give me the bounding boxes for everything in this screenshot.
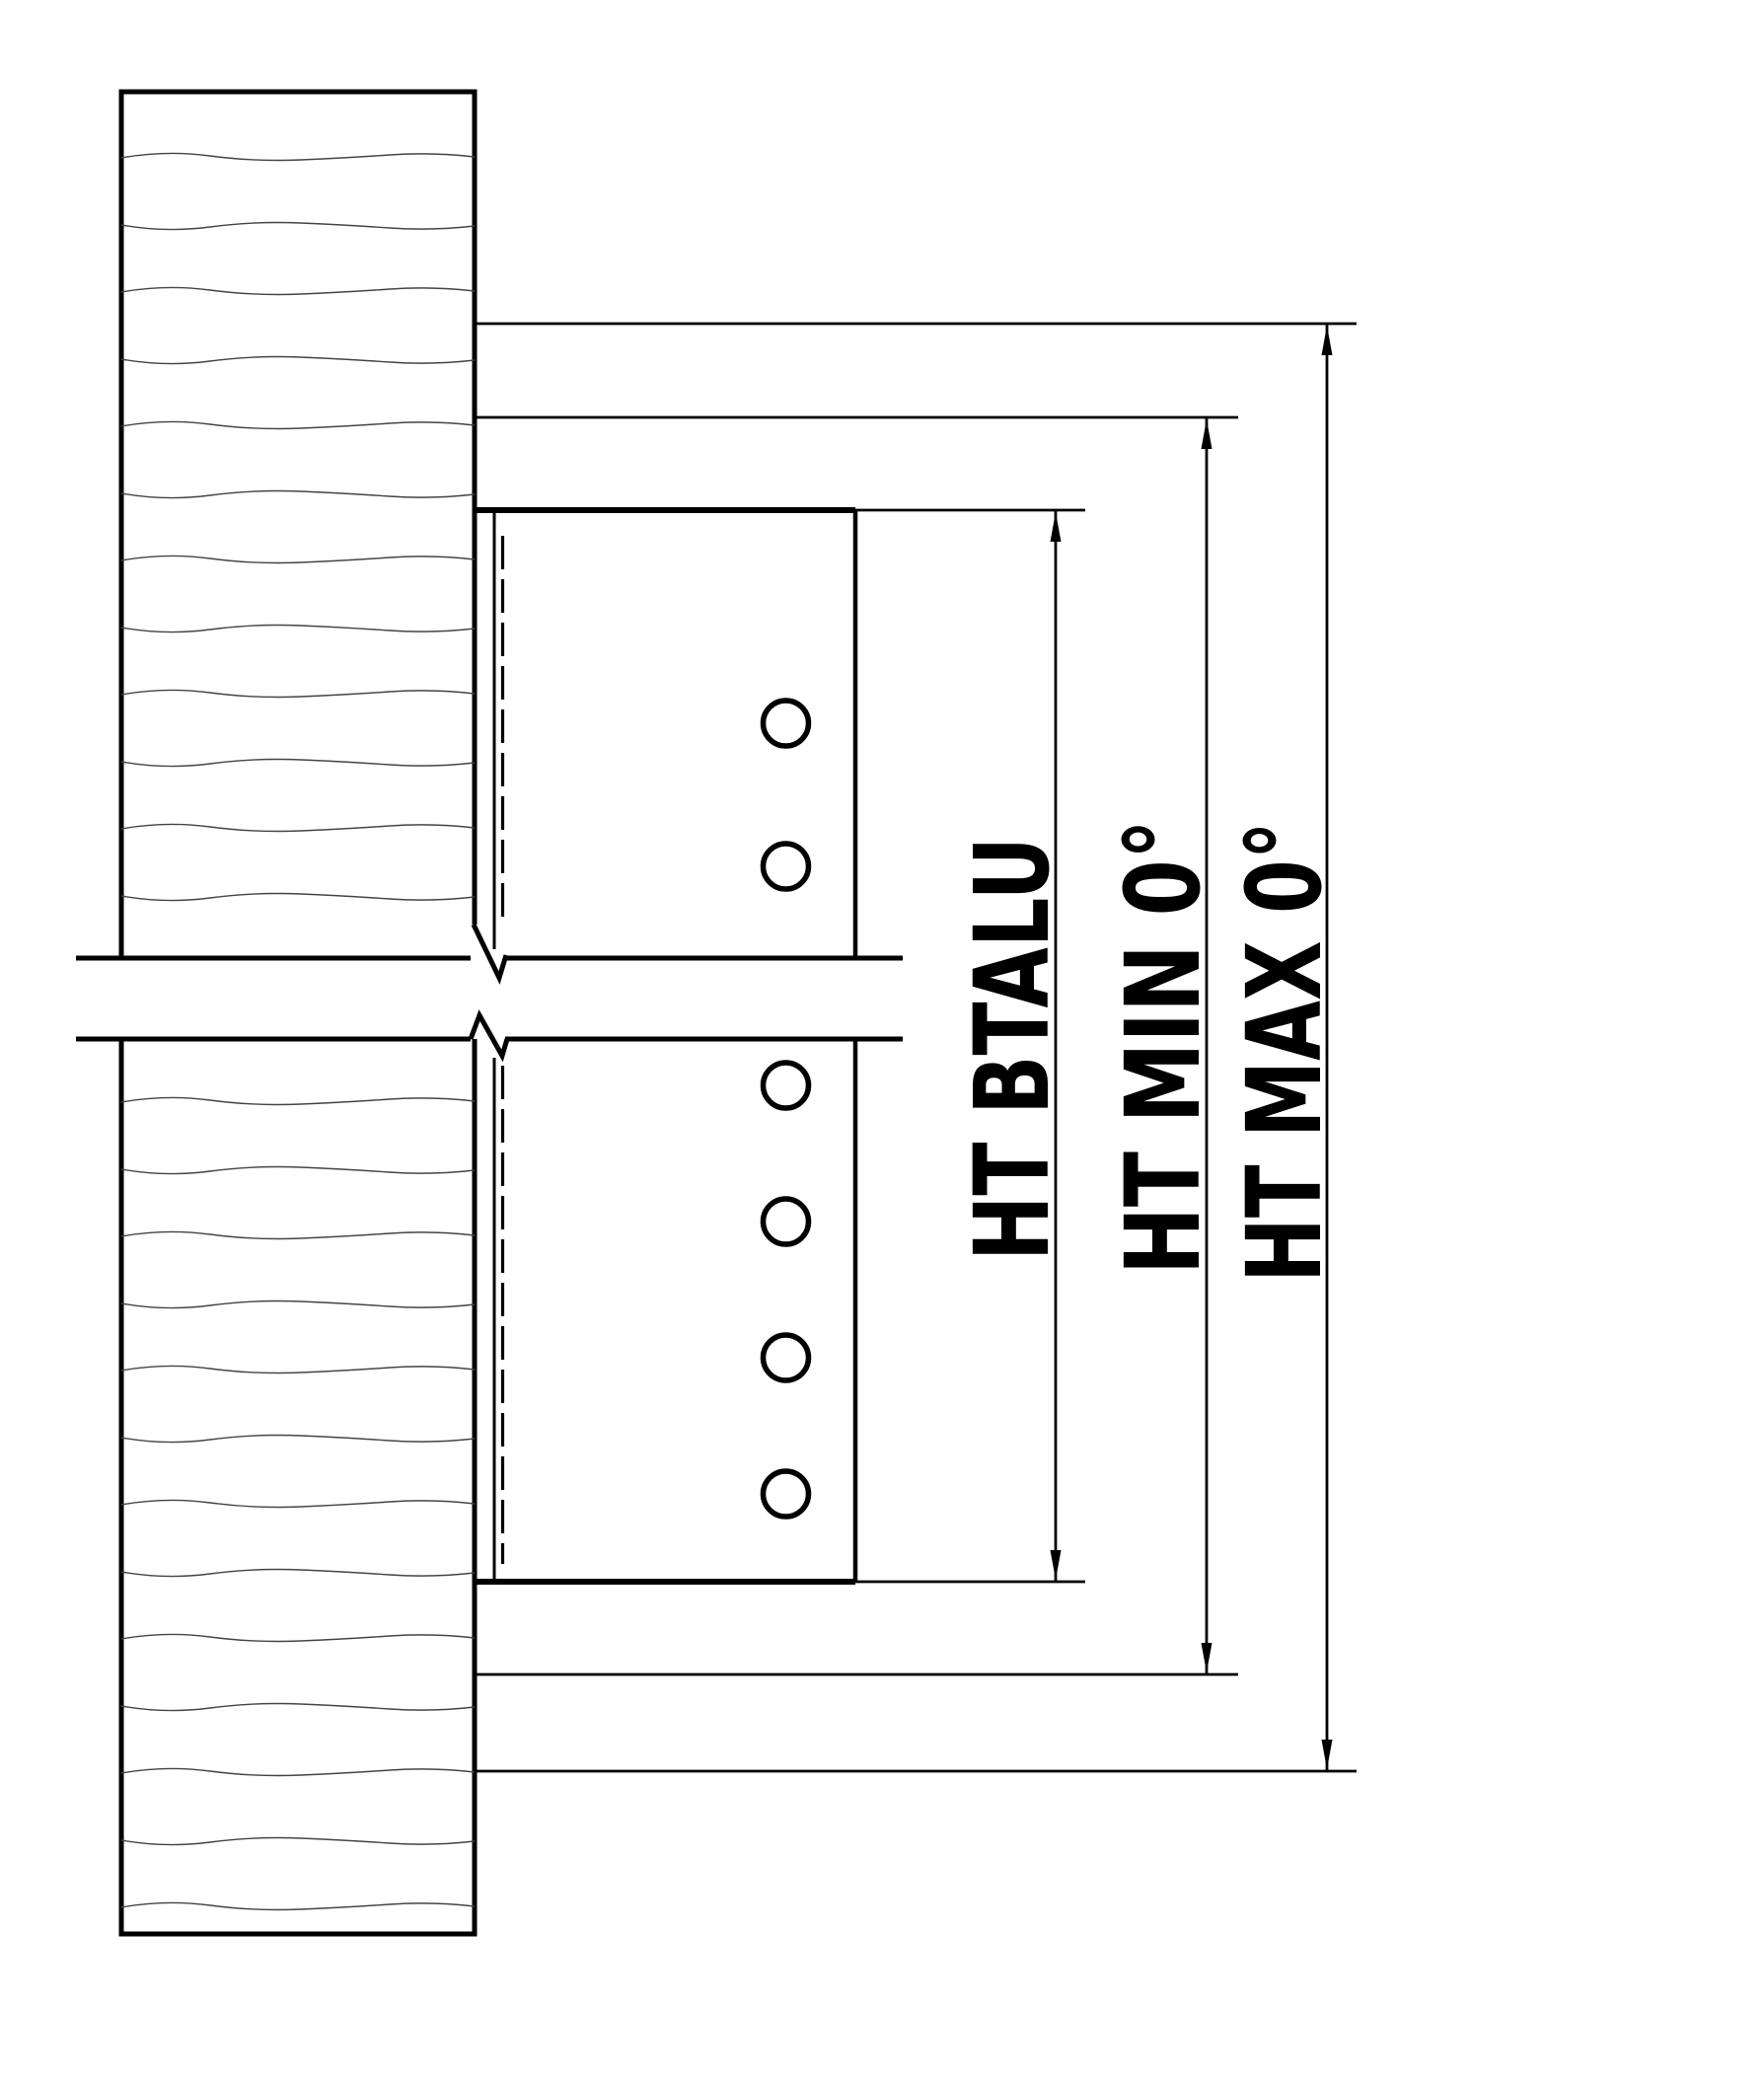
wood-grain-line bbox=[121, 1231, 475, 1238]
screw-hole bbox=[764, 1471, 809, 1517]
wood-grain-line bbox=[121, 1366, 475, 1373]
dimension-label-btalu: HT BTALU bbox=[952, 837, 1072, 1261]
wood-grain-line bbox=[121, 1500, 475, 1507]
wood-grain-line bbox=[121, 491, 475, 498]
arrow-up-icon bbox=[1202, 419, 1213, 449]
break-line-bottom bbox=[76, 1015, 903, 1056]
wood-grain-line bbox=[121, 1570, 475, 1577]
dimension-labels: HT BTALU HT MIN 0° HT MAX 0° bbox=[952, 819, 1345, 1283]
arrow-down-icon bbox=[1202, 1643, 1213, 1672]
arrow-down-icon bbox=[1322, 1740, 1333, 1769]
screw-hole bbox=[764, 701, 809, 746]
wood-jamb-top-outline bbox=[121, 92, 475, 958]
wood-grain-line bbox=[121, 760, 475, 767]
wood-grain-line bbox=[121, 894, 475, 901]
wood-jamb bbox=[121, 92, 475, 1934]
wood-grain-line bbox=[121, 153, 475, 160]
wood-grain-line bbox=[121, 1167, 475, 1174]
technical-section-drawing: HT BTALU HT MIN 0° HT MAX 0° bbox=[0, 0, 1764, 2079]
arrow-down-icon bbox=[1051, 1550, 1062, 1580]
wood-grain-line bbox=[121, 287, 475, 294]
wood-grain-line bbox=[121, 690, 475, 697]
arrow-up-icon bbox=[1051, 512, 1062, 542]
wood-grain-line bbox=[121, 1097, 475, 1104]
wood-grain-line bbox=[121, 1301, 475, 1308]
break-symbol bbox=[76, 925, 903, 1056]
wood-grain-line bbox=[121, 824, 475, 831]
wood-grain-line bbox=[121, 1838, 475, 1845]
wood-grain-line bbox=[121, 1902, 475, 1909]
wood-grain-line bbox=[121, 626, 475, 632]
cad-drawing-canvas: HT BTALU HT MIN 0° HT MAX 0° bbox=[0, 0, 1764, 2079]
screw-hole bbox=[764, 1063, 809, 1108]
break-line-top bbox=[76, 925, 903, 978]
screw-hole bbox=[764, 1335, 809, 1380]
wood-grain-top bbox=[121, 153, 475, 900]
wood-grain-line bbox=[121, 1768, 475, 1775]
wood-grain-line bbox=[121, 357, 475, 364]
dimension-label-max: HT MAX 0° bbox=[1224, 821, 1345, 1283]
screw-hole bbox=[764, 1199, 809, 1244]
dimension-label-min: HT MIN 0° bbox=[1103, 819, 1223, 1275]
wood-grain-line bbox=[121, 223, 475, 230]
wood-grain-line bbox=[121, 1436, 475, 1443]
wood-grain-line bbox=[121, 556, 475, 562]
wood-grain-line bbox=[121, 421, 475, 428]
arrow-up-icon bbox=[1322, 326, 1333, 355]
wood-grain-bottom bbox=[121, 1097, 475, 1909]
wood-grain-line bbox=[121, 1704, 475, 1711]
hinge-leaf-bottom bbox=[475, 1041, 855, 1582]
hinge-leaf-top bbox=[475, 510, 855, 956]
screw-hole bbox=[764, 844, 809, 889]
wood-grain-line bbox=[121, 1634, 475, 1641]
